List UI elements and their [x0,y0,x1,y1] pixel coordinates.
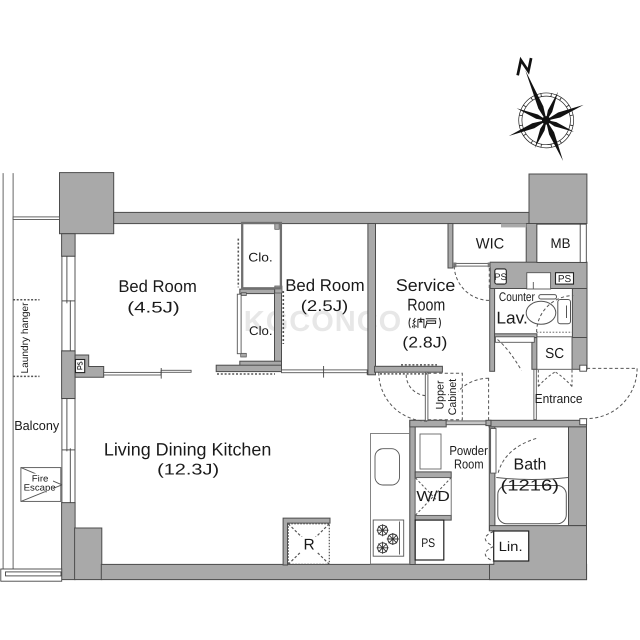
svg-text:Bath: Bath [514,456,547,473]
svg-text:Laundry hanger: Laundry hanger [20,302,31,374]
svg-text:Cabinet: Cabinet [447,379,459,416]
svg-text:Counter: Counter [499,290,535,304]
svg-text:Lin.: Lin. [499,539,523,554]
svg-text:Clo.: Clo. [248,250,273,264]
svg-text:Room: Room [454,457,484,472]
svg-text:(1216): (1216) [501,478,560,495]
svg-text:Living Dining Kitchen: Living Dining Kitchen [104,440,272,460]
svg-text:Lav.: Lav. [496,309,528,328]
svg-text:PS: PS [558,274,572,285]
svg-text:(2.5J): (2.5J) [301,298,349,315]
svg-text:Escape: Escape [24,482,56,492]
svg-text:(4.5J): (4.5J) [127,299,180,316]
svg-text:(12.3J): (12.3J) [157,461,219,478]
svg-text:W/D: W/D [416,489,450,505]
svg-text:Balcony: Balcony [14,418,59,433]
svg-text:Clo.: Clo. [249,324,273,338]
svg-text:R: R [303,536,314,553]
svg-text:(2.8J): (2.8J) [402,334,447,351]
svg-text:Room: Room [407,296,445,315]
svg-text:Bed Room: Bed Room [285,276,364,295]
svg-text:Upper: Upper [435,380,447,409]
svg-text:Bed Room: Bed Room [118,277,197,296]
svg-text:SC: SC [545,346,564,362]
svg-text:Service: Service [396,276,456,295]
svg-text:PS: PS [421,536,435,550]
svg-text:WIC: WIC [476,235,505,252]
svg-text:Entrance: Entrance [535,391,583,406]
svg-text:MB: MB [551,235,571,251]
svg-text:PS: PS [494,272,507,283]
